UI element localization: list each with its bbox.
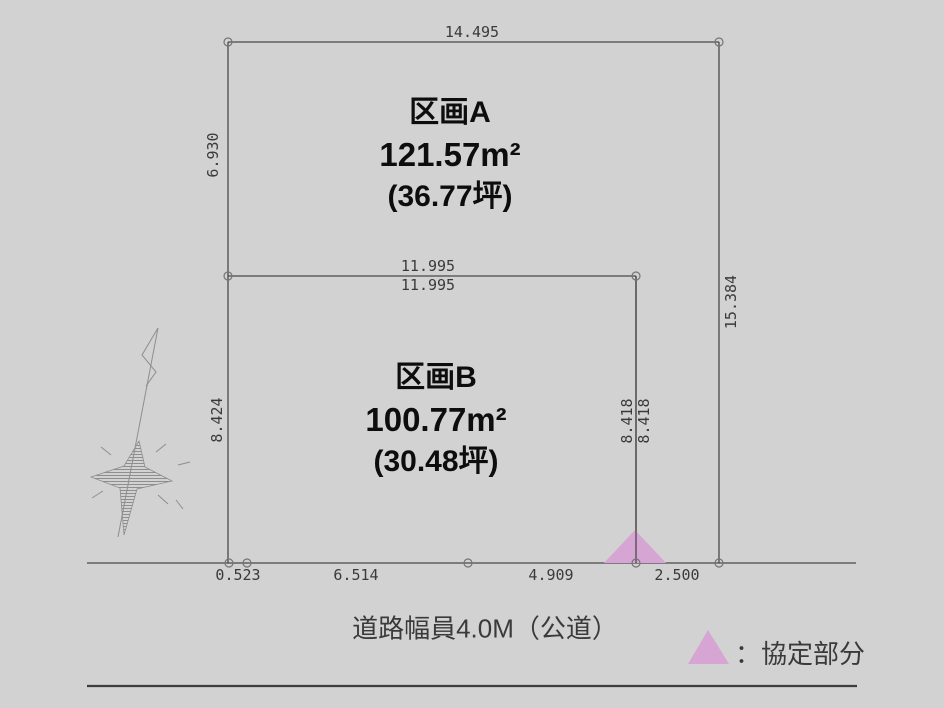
dim-bottom-0: 0.523: [215, 566, 260, 584]
dim-right: 15.384: [722, 275, 740, 329]
plot-b-tsubo: (30.48坪): [365, 441, 506, 483]
dim-divider-upper: 11.995: [401, 257, 455, 275]
dim-plot-b-right-outer: 8.418: [635, 398, 653, 443]
dim-top: 14.495: [445, 23, 499, 41]
dim-bottom-1: 6.514: [333, 566, 378, 584]
plot-a-name: 区画A: [379, 92, 520, 134]
agreement-triangle: [604, 530, 666, 563]
plot-a-area: 121.57m²: [379, 134, 520, 176]
dim-bottom-2: 4.909: [528, 566, 573, 584]
road-width-note: 道路幅員4.0M（公道）: [352, 609, 618, 646]
land-plot-diagram: 14.495 6.930 15.384 11.995 11.995 8.424 …: [0, 0, 944, 708]
dim-left-lower: 8.424: [208, 397, 226, 442]
dim-divider-lower: 11.995: [401, 276, 455, 294]
dim-plot-b-right-inner: 8.418: [618, 398, 636, 443]
dim-bottom-3: 2.500: [654, 566, 699, 584]
plot-b-label: 区画B 100.77m² (30.48坪): [365, 357, 506, 483]
plot-b-area: 100.77m²: [365, 399, 506, 441]
plot-a-tsubo: (36.77坪): [379, 176, 520, 218]
plot-a-label: 区画A 121.57m² (36.77坪): [379, 92, 520, 218]
plot-b-name: 区画B: [365, 357, 506, 399]
compass-star: [91, 441, 172, 535]
north-arrow-icon: [91, 328, 190, 537]
legend-triangle-icon: [688, 630, 729, 664]
dim-left-upper: 6.930: [204, 132, 222, 177]
legend-label: ：協定部分: [735, 634, 865, 671]
